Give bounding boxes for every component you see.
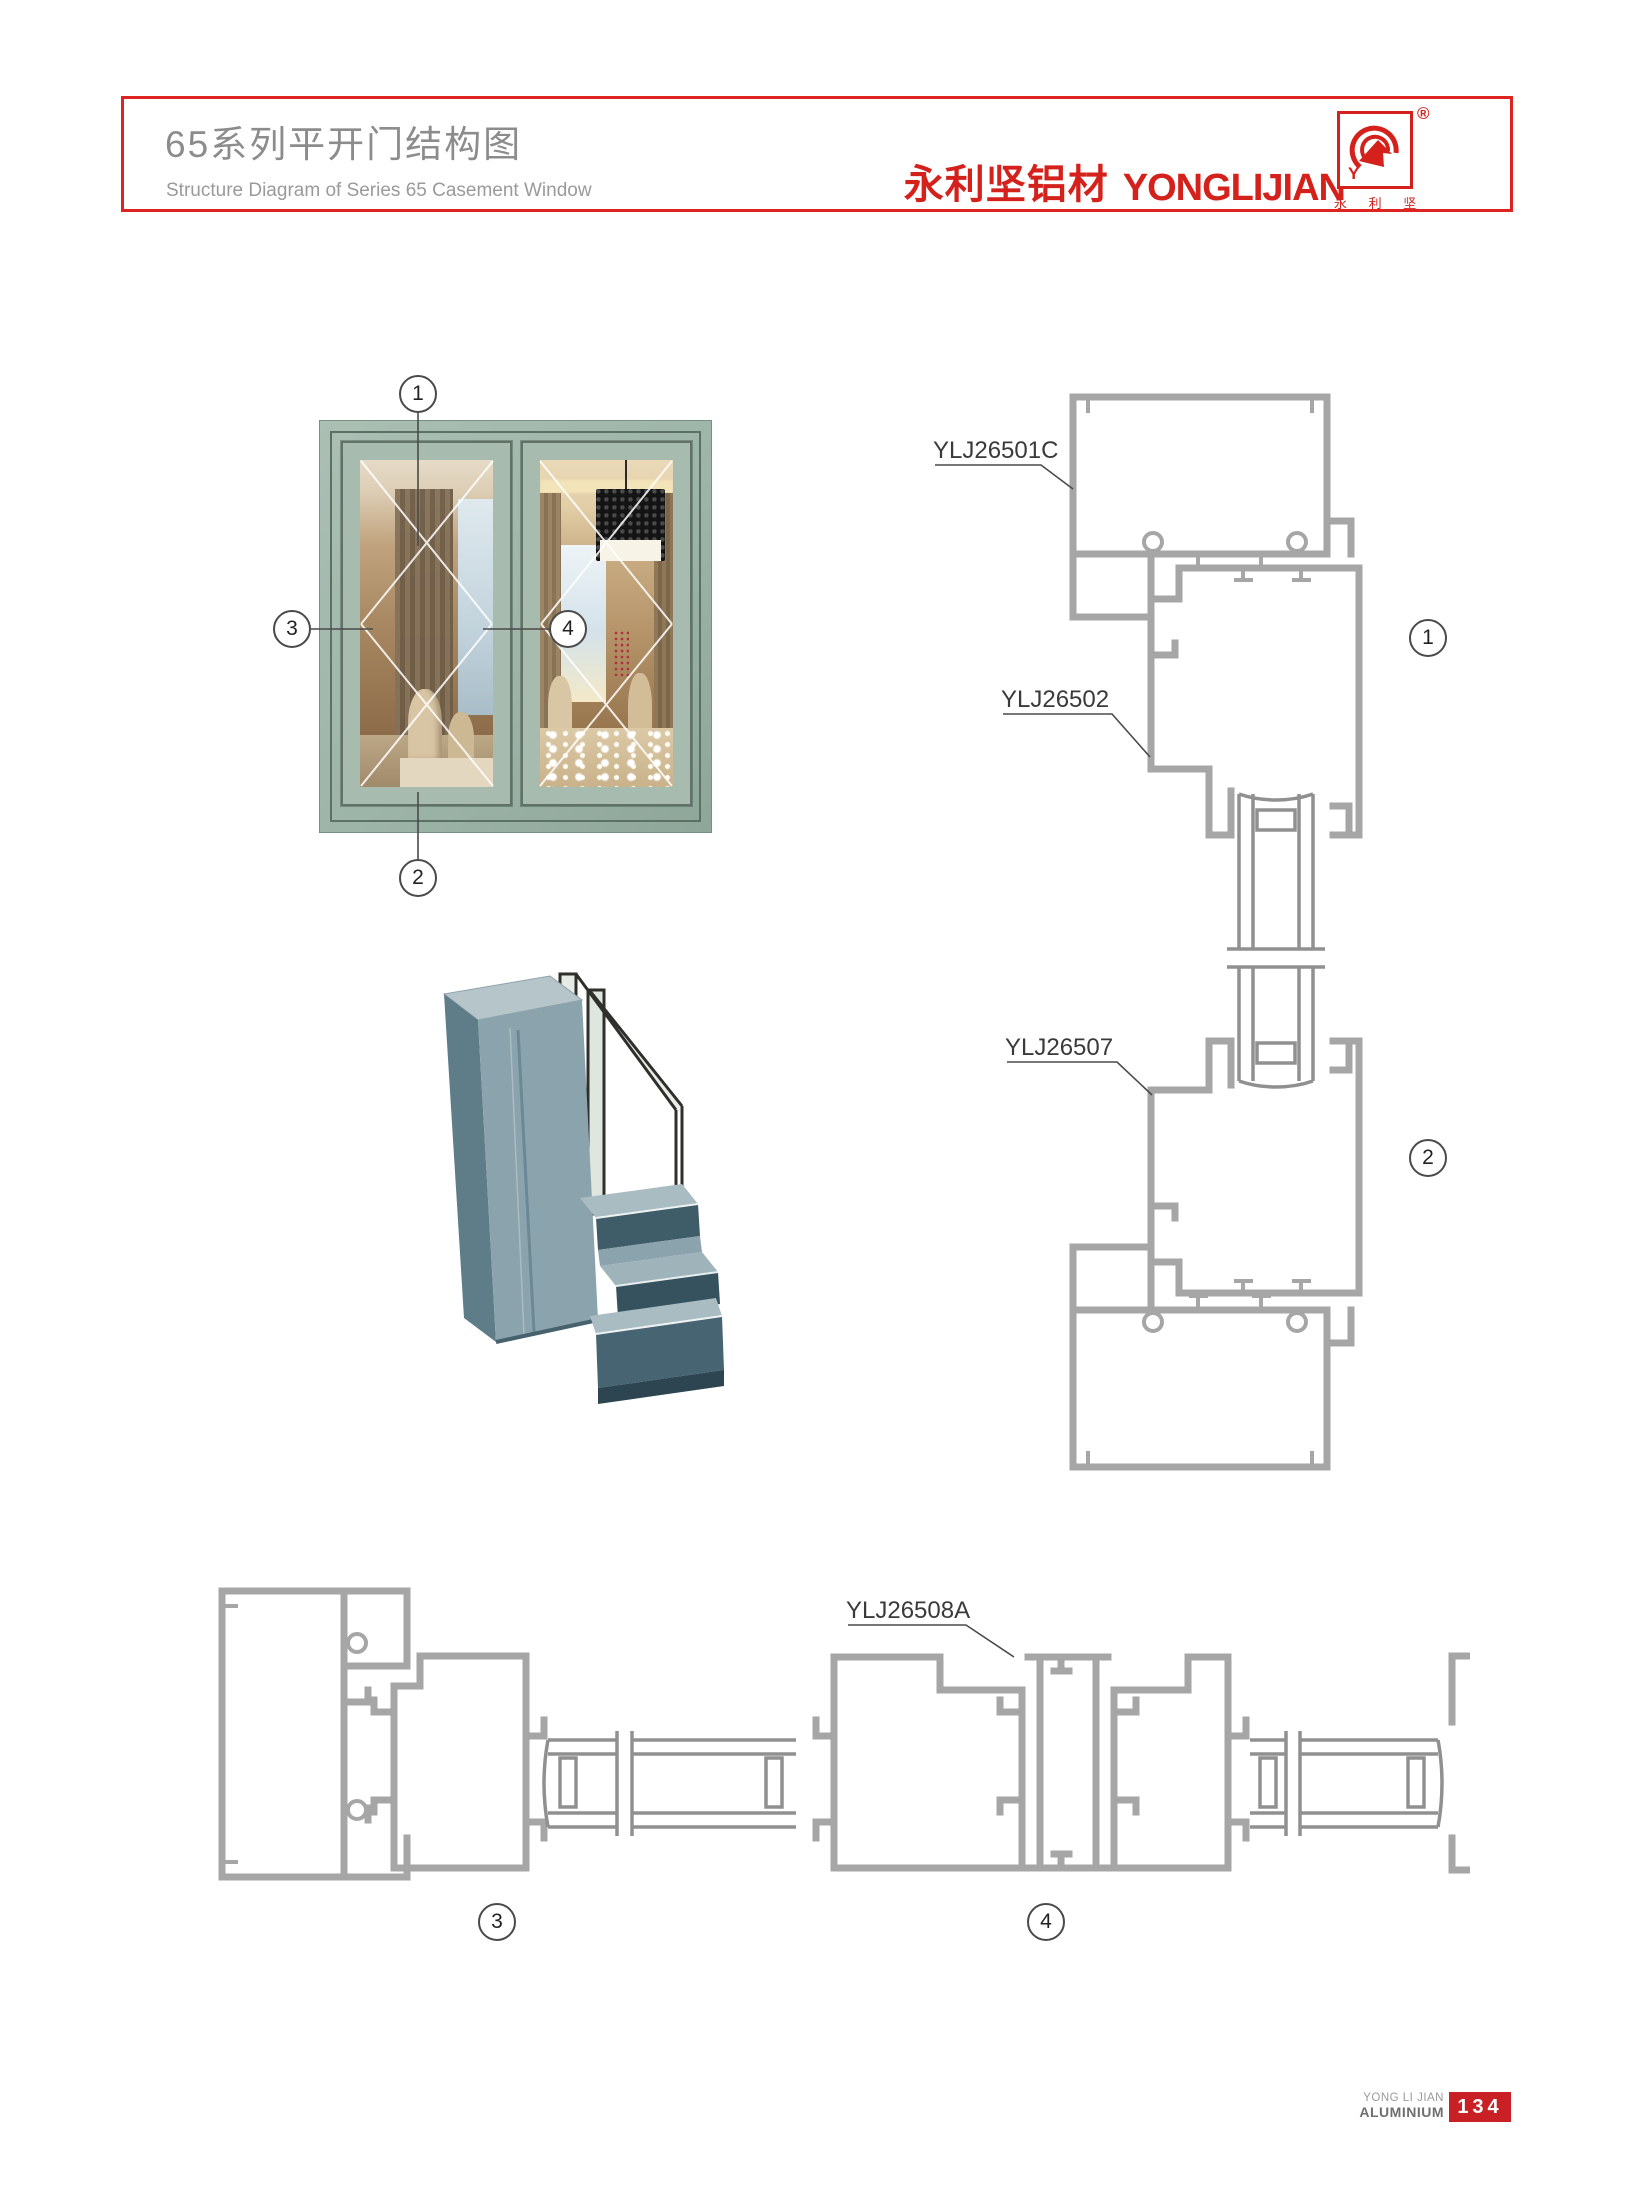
page-subtitle: Structure Diagram of Series 65 Casement … [166, 180, 592, 202]
footer-company-line1: YONG LI JIAN [1340, 2092, 1444, 2105]
part-label-ylj26508a: YLJ26508A [846, 1597, 970, 1625]
callout-1: 1 [399, 375, 437, 413]
slab-front-face [478, 1000, 598, 1342]
bottom-sash-profile [1151, 1041, 1359, 1293]
screw-boss [1144, 533, 1162, 551]
screw-boss [1288, 533, 1306, 551]
glass-panes [1239, 794, 1313, 1081]
part-label-ylj26501c: YLJ26501C [933, 437, 1058, 465]
glass-panes [1250, 1740, 1438, 1827]
glass-spacer [1257, 1043, 1295, 1063]
callout-2: 2 [399, 859, 437, 897]
window-glass-left [360, 460, 493, 787]
part-label-ylj26507: YLJ26507 [1005, 1034, 1113, 1062]
brand-name-en: YONGLIJIAN [1123, 167, 1345, 210]
interior-dining-table [540, 728, 673, 787]
callout-4: 4 [549, 610, 587, 648]
registered-trademark-icon: ® [1417, 104, 1430, 124]
footer-company: YONG LI JIAN ALUMINIUM [1340, 2092, 1444, 2120]
mullion-right-sash-profile [1114, 1657, 1246, 1868]
profile-chambers [580, 1184, 724, 1404]
glass-spacer [1260, 1758, 1276, 1807]
glass-cap [1438, 1740, 1442, 1827]
glass-spacer [1257, 810, 1295, 830]
screw-boss [1288, 1313, 1306, 1331]
glass-spacer [1408, 1758, 1424, 1807]
page-number-badge: 134 [1449, 2092, 1511, 2122]
catalog-page: 65系列平开门结构图 Structure Diagram of Series 6… [0, 0, 1635, 2203]
horizontal-section-drawing [200, 1580, 1470, 1890]
break-lines [1227, 949, 1325, 967]
window-photo-figure [319, 420, 712, 833]
section-mark-1: 1 [1409, 619, 1447, 657]
chandelier-wire [625, 460, 627, 493]
screw-boss [348, 1801, 366, 1819]
chandelier [596, 489, 665, 561]
top-sash-profile [1151, 568, 1359, 835]
break-lines [617, 1731, 632, 1836]
logo-caption: 永 利 坚 [1334, 193, 1416, 212]
break-lines [1286, 1731, 1300, 1836]
section-mark-4: 4 [1027, 1903, 1065, 1941]
callout-3: 3 [273, 610, 311, 648]
interior-table [400, 758, 493, 787]
glass-cap [544, 1740, 548, 1827]
glass-spacer [560, 1758, 576, 1807]
vertical-section-drawing [900, 370, 1460, 1490]
part-label-ylj26502: YLJ26502 [1001, 686, 1109, 714]
left-sash-profile [374, 1656, 544, 1868]
window-sash-left [341, 441, 512, 806]
mullion-profile [1028, 1657, 1108, 1868]
brand-name-cn: 永利坚铝材 [904, 152, 1109, 210]
page-title: 65系列平开门结构图 [165, 114, 522, 168]
interior-bright-window [458, 499, 493, 715]
section-mark-2: 2 [1409, 1139, 1447, 1177]
profile-3d-render [430, 960, 750, 1430]
interior-chair [408, 689, 443, 764]
glass-spacer [766, 1758, 782, 1807]
chandelier-shade [600, 540, 661, 562]
screw-boss [348, 1634, 366, 1652]
left-jamb-profile [222, 1591, 407, 1877]
section-mark-3: 3 [478, 1903, 516, 1941]
right-cut-profile [1452, 1656, 1468, 1870]
interior-flowers [613, 630, 629, 676]
logo-letter: Y [1348, 164, 1359, 184]
glass-panes [548, 1740, 796, 1827]
mullion-left-sash-profile [816, 1657, 1022, 1868]
footer-company-line2: ALUMINIUM [1340, 2105, 1444, 2120]
brand-wordmark: 永利坚铝材 YONGLIJIAN [900, 152, 1345, 210]
head-frame-profile [1073, 397, 1351, 617]
brand-logo-icon: Y [1337, 111, 1413, 189]
window-sash-right [521, 441, 692, 806]
screw-boss [1144, 1313, 1162, 1331]
